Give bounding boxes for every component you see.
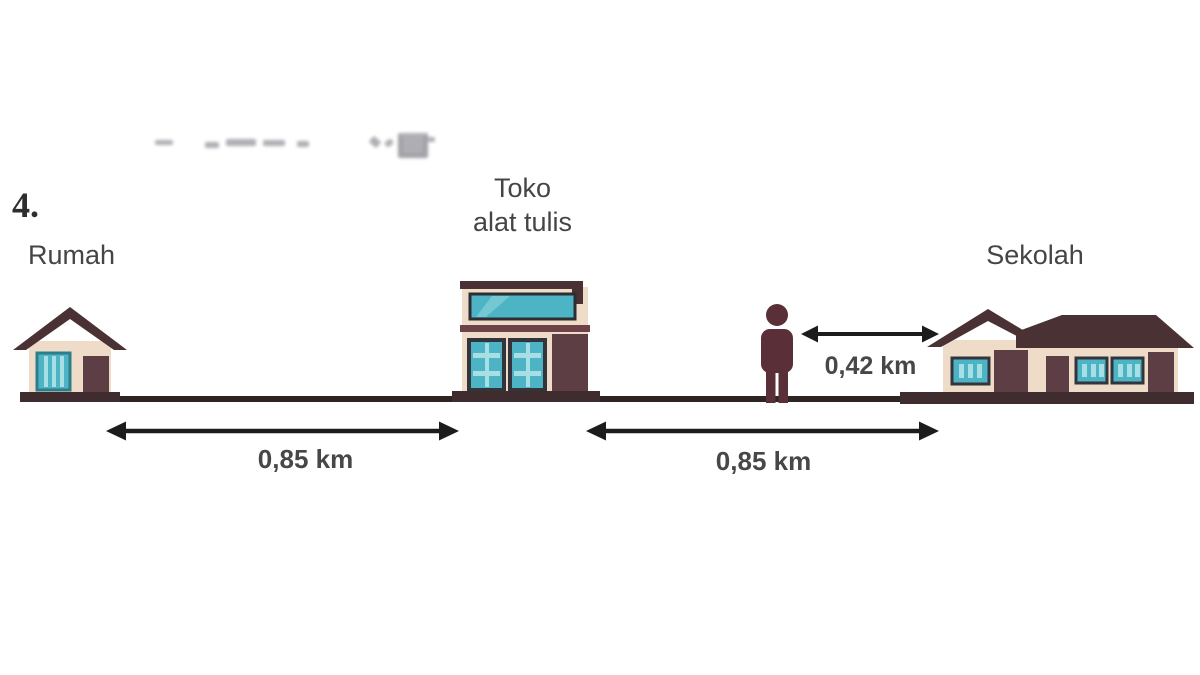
cropped-text-remnant [150, 130, 450, 160]
person-leg [766, 363, 776, 403]
school-window-icon [1076, 358, 1107, 383]
person-body [761, 329, 793, 373]
person-head [766, 304, 788, 326]
store-display-window-icon [469, 340, 504, 390]
store-parapet-trim [460, 281, 582, 289]
storefront-icon [452, 279, 600, 405]
distance-arrow-house-store [105, 418, 460, 444]
arrow-head-left [586, 422, 606, 441]
school-window-icon [952, 358, 989, 384]
school-door-icon [994, 350, 1028, 397]
house-window-bar [52, 356, 56, 387]
arrow-head-left [801, 326, 818, 343]
house-window-bar [44, 356, 48, 387]
store-stripe [460, 325, 590, 332]
distance-label-person-school: 0,42 km [803, 352, 938, 381]
school-icon [896, 306, 1198, 406]
distance-label-house-store: 0,85 km [228, 444, 383, 475]
house-label: Rumah [28, 240, 115, 271]
store-display-window-icon [510, 340, 545, 390]
school-window-icon [1112, 358, 1143, 383]
store-base [452, 391, 600, 402]
house-base [20, 392, 120, 402]
house-door-icon [83, 356, 109, 394]
arrow-head-left [106, 422, 126, 441]
school-door-icon [1046, 356, 1069, 397]
store-door-icon [552, 334, 588, 394]
house-window-bar [60, 356, 64, 387]
distance-label-store-school: 0,85 km [686, 446, 841, 477]
store-label: Toko alat tulis [430, 172, 615, 240]
distance-arrow-store-school [585, 418, 940, 444]
worksheet-page: { "question_number": "4.", "labels": { "… [0, 0, 1200, 675]
distance-arrow-person-school [800, 322, 940, 346]
store-label-line2: alat tulis [473, 207, 572, 237]
arrow-head-right [439, 422, 459, 441]
person-leg [779, 363, 789, 403]
person-icon [757, 303, 797, 403]
school-door-icon [1148, 352, 1174, 397]
store-label-line1: Toko [494, 173, 551, 203]
question-number: 4. [12, 184, 39, 226]
school-label: Sekolah [950, 240, 1120, 271]
arrow-head-right [922, 326, 939, 343]
house-icon [13, 307, 127, 404]
school-base [900, 392, 1194, 404]
arrow-head-right [919, 422, 939, 441]
